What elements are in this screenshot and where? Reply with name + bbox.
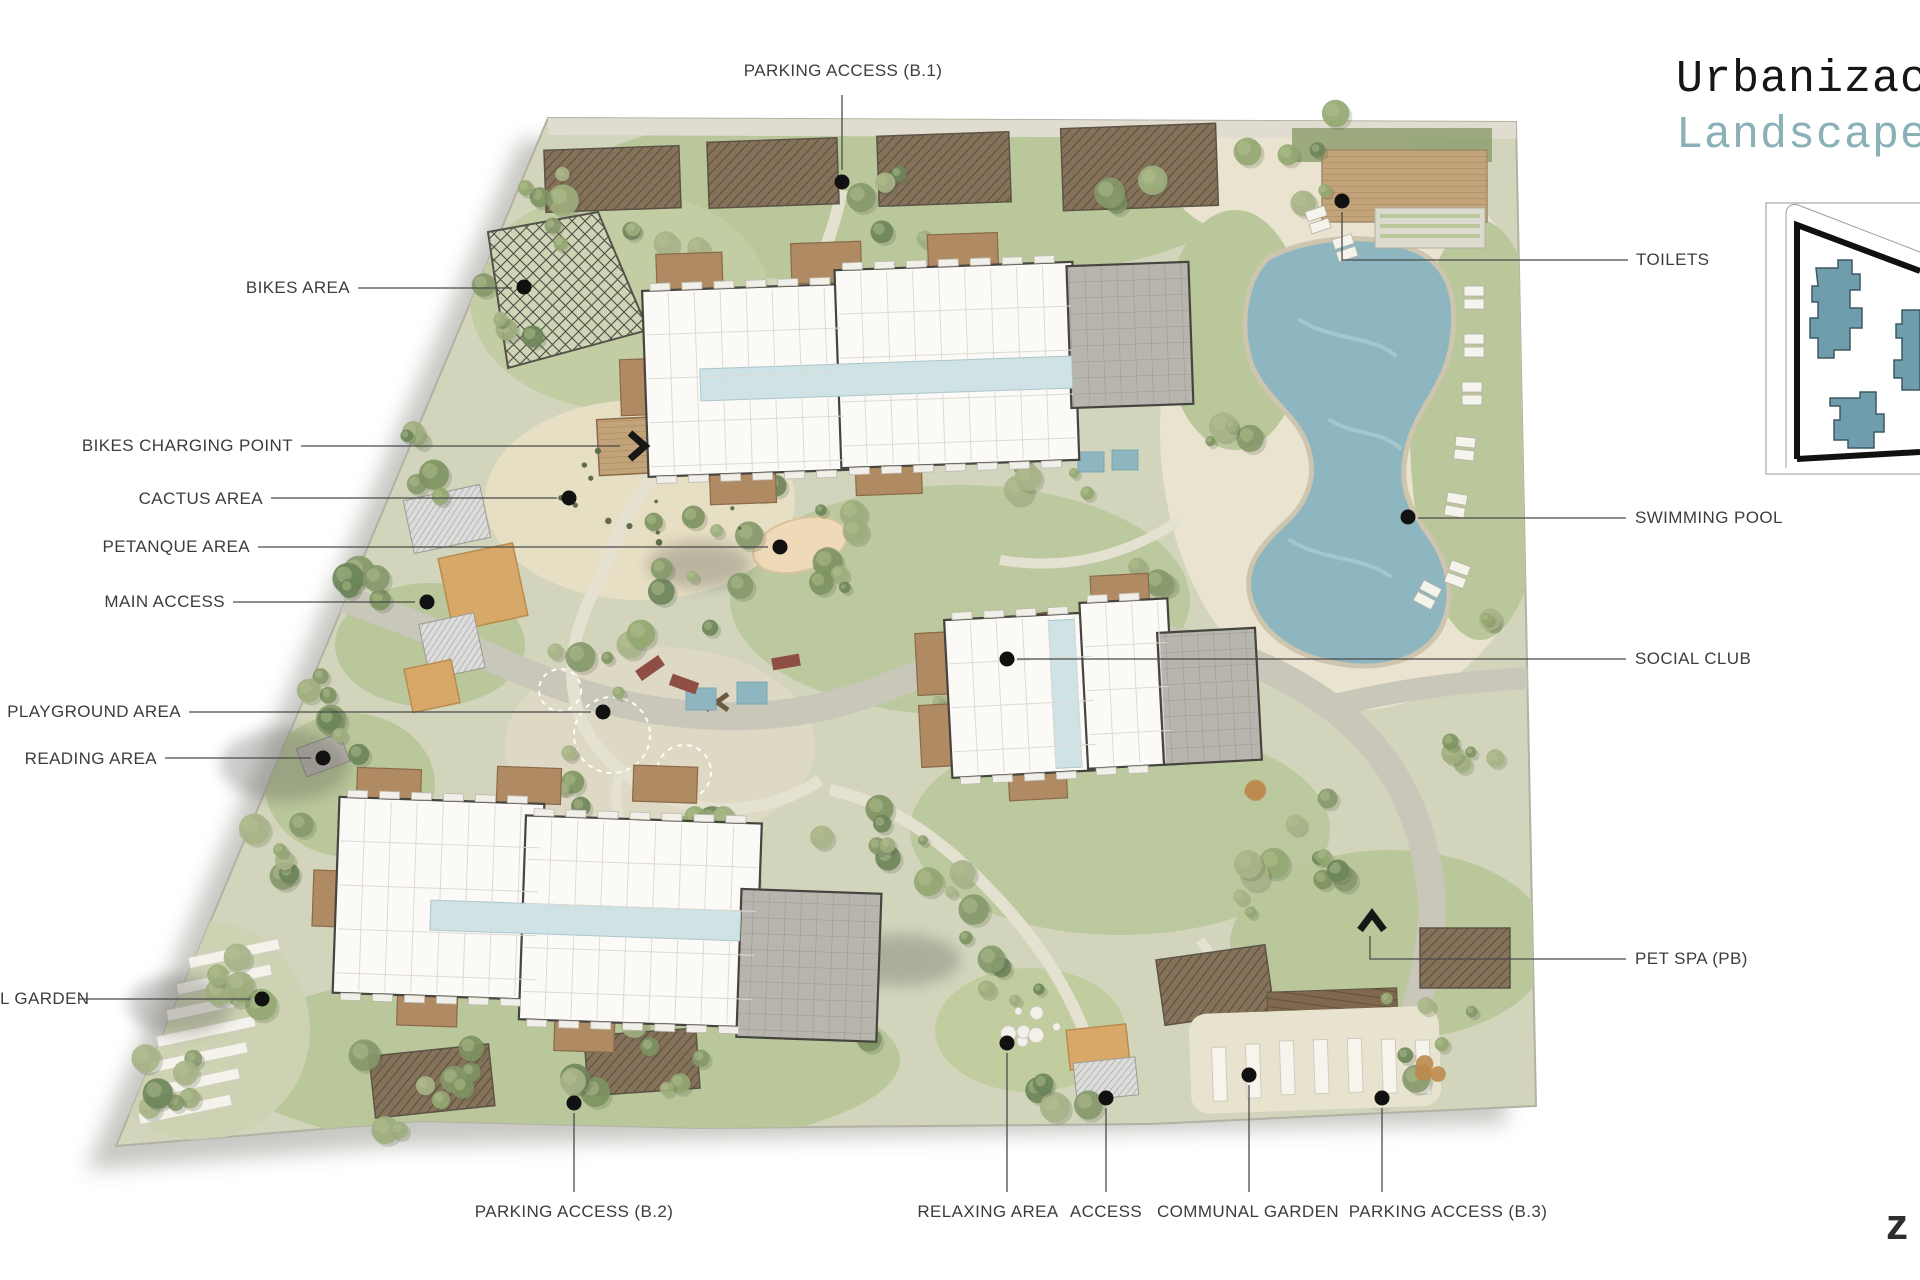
project-title: Urbanizac	[1676, 54, 1920, 105]
callout-reading: READING AREA	[25, 750, 157, 768]
callout-main-access: MAIN ACCESS	[104, 593, 225, 611]
callout-toilets: TOILETS	[1636, 251, 1709, 269]
callout-access: ACCESS	[1070, 1203, 1142, 1221]
callout-communal-garden: COMMUNAL GARDEN	[1157, 1203, 1339, 1221]
masterplan-sheet: PARKING ACCESS (B.1) BIKES AREA BIKES CH…	[0, 0, 1920, 1280]
location-key-map	[1766, 203, 1920, 474]
callout-parking-b1: PARKING ACCESS (B.1)	[744, 62, 943, 80]
callout-swimming-pool: SWIMMING POOL	[1635, 509, 1783, 527]
callout-playground: PLAYGROUND AREA	[7, 703, 181, 721]
logo-z-clipped: z	[1886, 1200, 1908, 1250]
callout-parking-b3: PARKING ACCESS (B.3)	[1349, 1203, 1548, 1221]
callout-garden-clipped: L GARDEN	[0, 990, 89, 1008]
callout-bikes-area: BIKES AREA	[246, 279, 350, 297]
callout-pet-spa: PET SPA (PB)	[1635, 950, 1748, 968]
project-subtitle: Landscape	[1676, 110, 1920, 161]
callout-petanque: PETANQUE AREA	[102, 538, 250, 556]
callout-relaxing: RELAXING AREA	[917, 1203, 1058, 1221]
pet-spa-garden	[1420, 928, 1510, 988]
callout-cactus: CACTUS AREA	[139, 490, 263, 508]
site-plan-drawing	[0, 0, 1920, 1280]
callout-social-club: SOCIAL CLUB	[1635, 650, 1751, 668]
callout-bikes-charging: BIKES CHARGING POINT	[82, 437, 293, 455]
callout-parking-b2: PARKING ACCESS (B.2)	[475, 1203, 674, 1221]
